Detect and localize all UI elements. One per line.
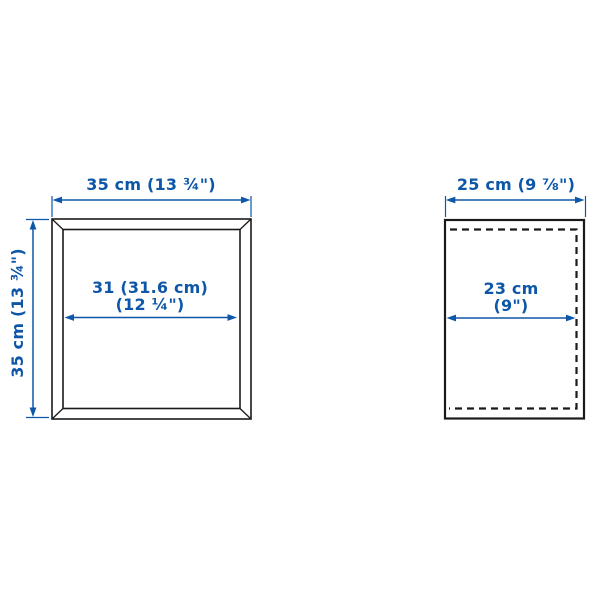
front-width-dimension-arrow [52,196,251,217]
dimension-diagram: 35 cm (13 ¾") 35 cm (13 ¾") 31 (31.6 cm)… [0,0,600,600]
side-inner-depth-label-line2: (9") [484,298,539,315]
front-height-label: 35 cm (13 ¾") [10,248,26,378]
side-view-outline [445,220,584,419]
side-inner-depth-label: 23 cm (9") [484,281,539,314]
front-view-inner-panel [63,230,240,409]
front-height-dimension-arrow [26,220,49,418]
side-depth-label: 25 cm (9 ⅞") [457,177,575,193]
front-width-label: 35 cm (13 ¾") [86,177,216,193]
side-depth-dimension-arrow [446,196,586,217]
front-inner-width-label-line2: (12 ¼") [92,297,208,314]
front-inner-width-label: 31 (31.6 cm) (12 ¼") [92,280,208,313]
